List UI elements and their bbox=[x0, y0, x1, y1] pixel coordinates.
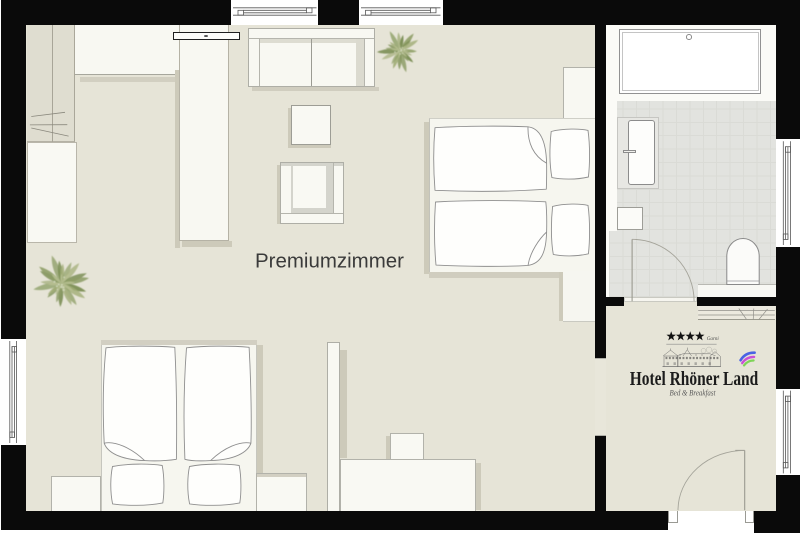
svg-text:Garni: Garni bbox=[707, 337, 720, 342]
svg-text:Bed & Breakfast: Bed & Breakfast bbox=[670, 389, 717, 398]
svg-text:Hotel Rhöner Land: Hotel Rhöner Land bbox=[630, 368, 759, 390]
svg-text:Premiumzimmer: Premiumzimmer bbox=[255, 250, 404, 272]
